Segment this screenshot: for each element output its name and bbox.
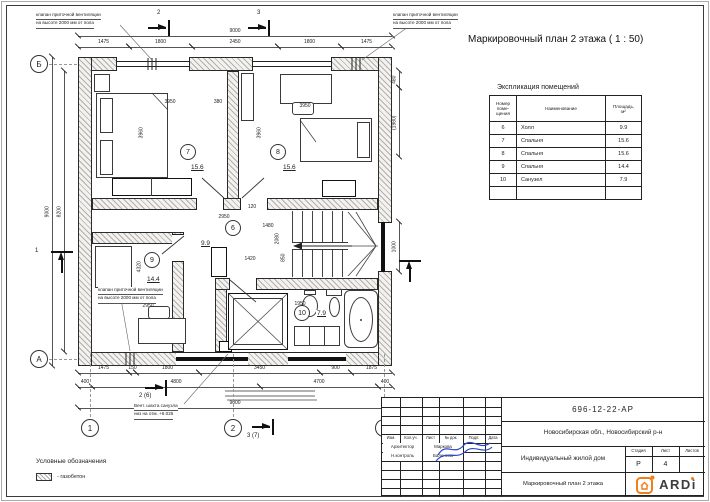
dimension-line xyxy=(278,47,341,48)
exp-table-cell: Санузел xyxy=(517,174,606,187)
list-value: 4 xyxy=(652,456,679,472)
exp-table-cell: Холл xyxy=(517,122,606,135)
dimension-line xyxy=(399,222,400,272)
exp-table-row: 10Санузел7.9 xyxy=(490,174,642,187)
dimension-label: 1475 xyxy=(353,40,381,46)
doc-number: 696-12-22-АР xyxy=(501,398,705,421)
dimension-label: 1800 xyxy=(154,366,182,372)
exp-table-cell xyxy=(490,187,517,200)
dimension-line xyxy=(341,47,392,48)
dimension-label: 3450 xyxy=(246,366,274,372)
dimension-label: 1875 xyxy=(358,366,386,372)
project-name: Индивидуальный жилой дом xyxy=(501,446,625,472)
exp-table-row: 9Спальня14.4 xyxy=(490,161,642,174)
dimension-label: 1420 xyxy=(236,257,264,263)
section-marker-label: 2 (6) xyxy=(138,393,152,399)
leader-note-line: Вент. шахта санузла xyxy=(134,403,178,411)
dimension-label: 1800 xyxy=(296,40,324,46)
axis-line xyxy=(233,354,234,417)
exp-table-title: Экспликация помещений xyxy=(497,84,579,91)
dimension-line xyxy=(129,47,192,48)
exp-table-row: 7Спальня15.6 xyxy=(490,135,642,148)
section-marker-arrow xyxy=(406,261,412,269)
exp-table-cell: 15.6 xyxy=(606,148,642,161)
exp-table-cell: 7 xyxy=(490,135,517,148)
exp-table-cell: 14.4 xyxy=(606,161,642,174)
exp-table-cell: 9 xyxy=(490,161,517,174)
dimension-label: 3960 xyxy=(139,119,145,147)
dimension-label: 9000 xyxy=(221,401,249,407)
exp-table-cell: 9.9 xyxy=(606,122,642,135)
exp-table-cell: 10 xyxy=(490,174,517,187)
exp-table-cell: 6 xyxy=(490,122,517,135)
exp-table-cell: Спальня xyxy=(517,135,606,148)
section-marker-bar xyxy=(165,380,167,396)
dimension-label: 400 xyxy=(371,380,399,386)
dimension-label: 400 xyxy=(71,380,99,386)
sheet-name: Маркировочный план 2 этажа xyxy=(501,472,625,497)
signature-scribbles xyxy=(432,435,494,465)
list-label: Лист xyxy=(652,446,679,456)
leader-note-line: на высоте 2000 мм от пола xyxy=(36,20,94,28)
dimension-line xyxy=(92,387,260,388)
dimension-line xyxy=(399,88,400,157)
section-marker-bar xyxy=(272,419,274,435)
exp-table-cell xyxy=(606,187,642,200)
exp-table-cell: Спальня xyxy=(517,161,606,174)
section-marker-arrow xyxy=(262,423,270,429)
dimension-label: 480 xyxy=(392,65,398,93)
page-title: Маркировочный план 2 этажа ( 1 : 50) xyxy=(468,34,643,45)
dimension-line xyxy=(351,373,392,374)
exp-table-head: Номер поме- щения Наименование Площадь, … xyxy=(490,96,642,122)
leader-note-line: клапан приточной вентиляции xyxy=(393,12,458,20)
tb-header-izm: Изм. xyxy=(382,434,400,443)
dimension-line xyxy=(64,71,65,352)
dimension-line xyxy=(78,408,392,409)
dimension-label: 900 xyxy=(322,366,350,372)
section-marker-label: 1 xyxy=(34,248,39,254)
leader-note-line: на высоте 2000 мм от пола xyxy=(393,20,451,28)
ardi-house-icon xyxy=(634,474,656,496)
axis-circle: 1 xyxy=(81,419,99,437)
dimension-line xyxy=(78,373,129,374)
ardi-logo: ARDi xyxy=(626,473,705,496)
tb-role-architect: Архитектор xyxy=(383,443,422,452)
leader-note: клапан приточной вентиляциина высоте 200… xyxy=(36,12,101,29)
dimension-label: 120 xyxy=(238,205,266,211)
dimension-label: 1475 xyxy=(90,366,118,372)
leader-note: Вент. шахта санузланиз на отм. +6.025 xyxy=(134,403,178,420)
exp-table: Номер поме- щения Наименование Площадь, … xyxy=(489,95,642,200)
axis-line xyxy=(49,64,77,65)
room-number: 8 xyxy=(270,144,286,160)
tb-role-ncontrol: Н.контроль xyxy=(383,452,422,461)
dimension-label: 380 xyxy=(204,100,232,106)
room-number: 6 xyxy=(225,220,241,236)
section-marker-bar xyxy=(268,20,270,36)
exp-table-cell: 15.6 xyxy=(606,135,642,148)
dimension-line xyxy=(52,57,53,366)
section-marker-arrow xyxy=(58,252,64,260)
hatch-swatch xyxy=(36,473,52,481)
ardi-wordmark-dot xyxy=(691,477,694,480)
dimension-label: 1000 xyxy=(392,233,398,261)
room-area: 15.6 xyxy=(190,164,205,171)
room-number: 9 xyxy=(144,252,160,268)
dimension-label: 8200 xyxy=(57,197,63,225)
exp-table-row: 8Спальня15.6 xyxy=(490,148,642,161)
legend-item-label: - газобетон xyxy=(57,474,85,480)
dimension-label: 850 xyxy=(281,244,287,272)
room-area: 14.4 xyxy=(146,276,161,283)
drawing-sheet: 1475180024501800147590001475150180034509… xyxy=(0,0,710,502)
dimension-label: 9000 xyxy=(45,197,51,225)
dimension-line xyxy=(399,71,400,88)
exp-table-cell: Спальня xyxy=(517,148,606,161)
dimension-label: 3960 xyxy=(257,119,263,147)
dimension-label: 3950 xyxy=(291,104,319,110)
dimension-label: 4700 xyxy=(305,380,333,386)
axis-circle: 2 xyxy=(224,419,242,437)
dimension-line xyxy=(199,373,320,374)
room-number: 7 xyxy=(180,144,196,160)
exp-table-cell: 8 xyxy=(490,148,517,161)
dimension-label: 1475 xyxy=(90,40,118,46)
exp-table-body: 6Холл9.97Спальня15.68Спальня15.69Спальня… xyxy=(490,122,642,200)
legend-title: Условные обозначения xyxy=(36,458,106,465)
leader-note-line: низ на отм. +6.025 xyxy=(134,411,173,419)
section-marker-label: 2 xyxy=(156,10,161,16)
exp-table-cell xyxy=(517,187,606,200)
dimension-label: 1800 xyxy=(147,40,175,46)
dimension-line xyxy=(192,47,278,48)
dimension-label: 9000 xyxy=(221,29,249,35)
axis-line xyxy=(49,359,77,360)
section-marker-arrow xyxy=(258,24,266,30)
leader-note: клапан приточной вентиляциина высоте 200… xyxy=(98,287,163,304)
leader-note-line: клапан приточной вентиляции xyxy=(98,287,163,295)
section-marker-bar xyxy=(168,20,170,36)
dimension-line xyxy=(260,387,378,388)
dimension-label: 2950 xyxy=(134,304,162,310)
exp-header-area: Площадь, м² xyxy=(606,96,642,122)
room-number: 10 xyxy=(294,305,310,321)
room-area: 15.6 xyxy=(282,164,297,171)
axis-line xyxy=(90,354,91,417)
dimension-label: (1980) xyxy=(392,108,398,136)
section-marker-arrow xyxy=(155,384,163,390)
room-area: 9.9 xyxy=(200,240,211,247)
leader-note: клапан приточной вентиляциина высоте 200… xyxy=(393,12,458,29)
dimension-label: 4320 xyxy=(137,253,143,281)
dimension-label: 2450 xyxy=(221,40,249,46)
axis-circle: А xyxy=(30,350,48,368)
exp-table-row xyxy=(490,187,642,200)
dimension-label: 2080 xyxy=(275,225,281,253)
section-marker-label: 3 xyxy=(256,10,261,16)
room-area: 7.9 xyxy=(316,310,327,317)
section-marker-arrow xyxy=(158,24,166,30)
exp-table-cell: 7.9 xyxy=(606,174,642,187)
stage-label: Стадия xyxy=(625,446,652,456)
exp-header-number: Номер поме- щения xyxy=(490,96,517,122)
lists-value xyxy=(679,456,705,472)
leader-note-line: на высоте 2000 мм от пола xyxy=(98,295,156,303)
dimension-line xyxy=(78,36,392,37)
stage-value: Р xyxy=(625,456,652,472)
dimension-line xyxy=(78,47,129,48)
section-marker-label: 3 (7) xyxy=(246,433,260,439)
lists-label: Листов xyxy=(679,446,705,456)
exp-table-row: 6Холл9.9 xyxy=(490,122,642,135)
title-block: Изм. Кол.уч. Лист № док. Подп. Дата Архи… xyxy=(381,397,704,496)
tb-header-koluch: Кол.уч. xyxy=(400,434,422,443)
axis-circle: Б xyxy=(30,55,48,73)
dimension-line xyxy=(320,373,351,374)
leader-note-line: клапан приточной вентиляции xyxy=(36,12,101,20)
dimension-label: 3950 xyxy=(156,100,184,106)
project-location: Новосибирская обл., Новосибирский р-н xyxy=(501,421,705,446)
exp-header-name: Наименование xyxy=(517,96,606,122)
dimension-line xyxy=(136,373,199,374)
